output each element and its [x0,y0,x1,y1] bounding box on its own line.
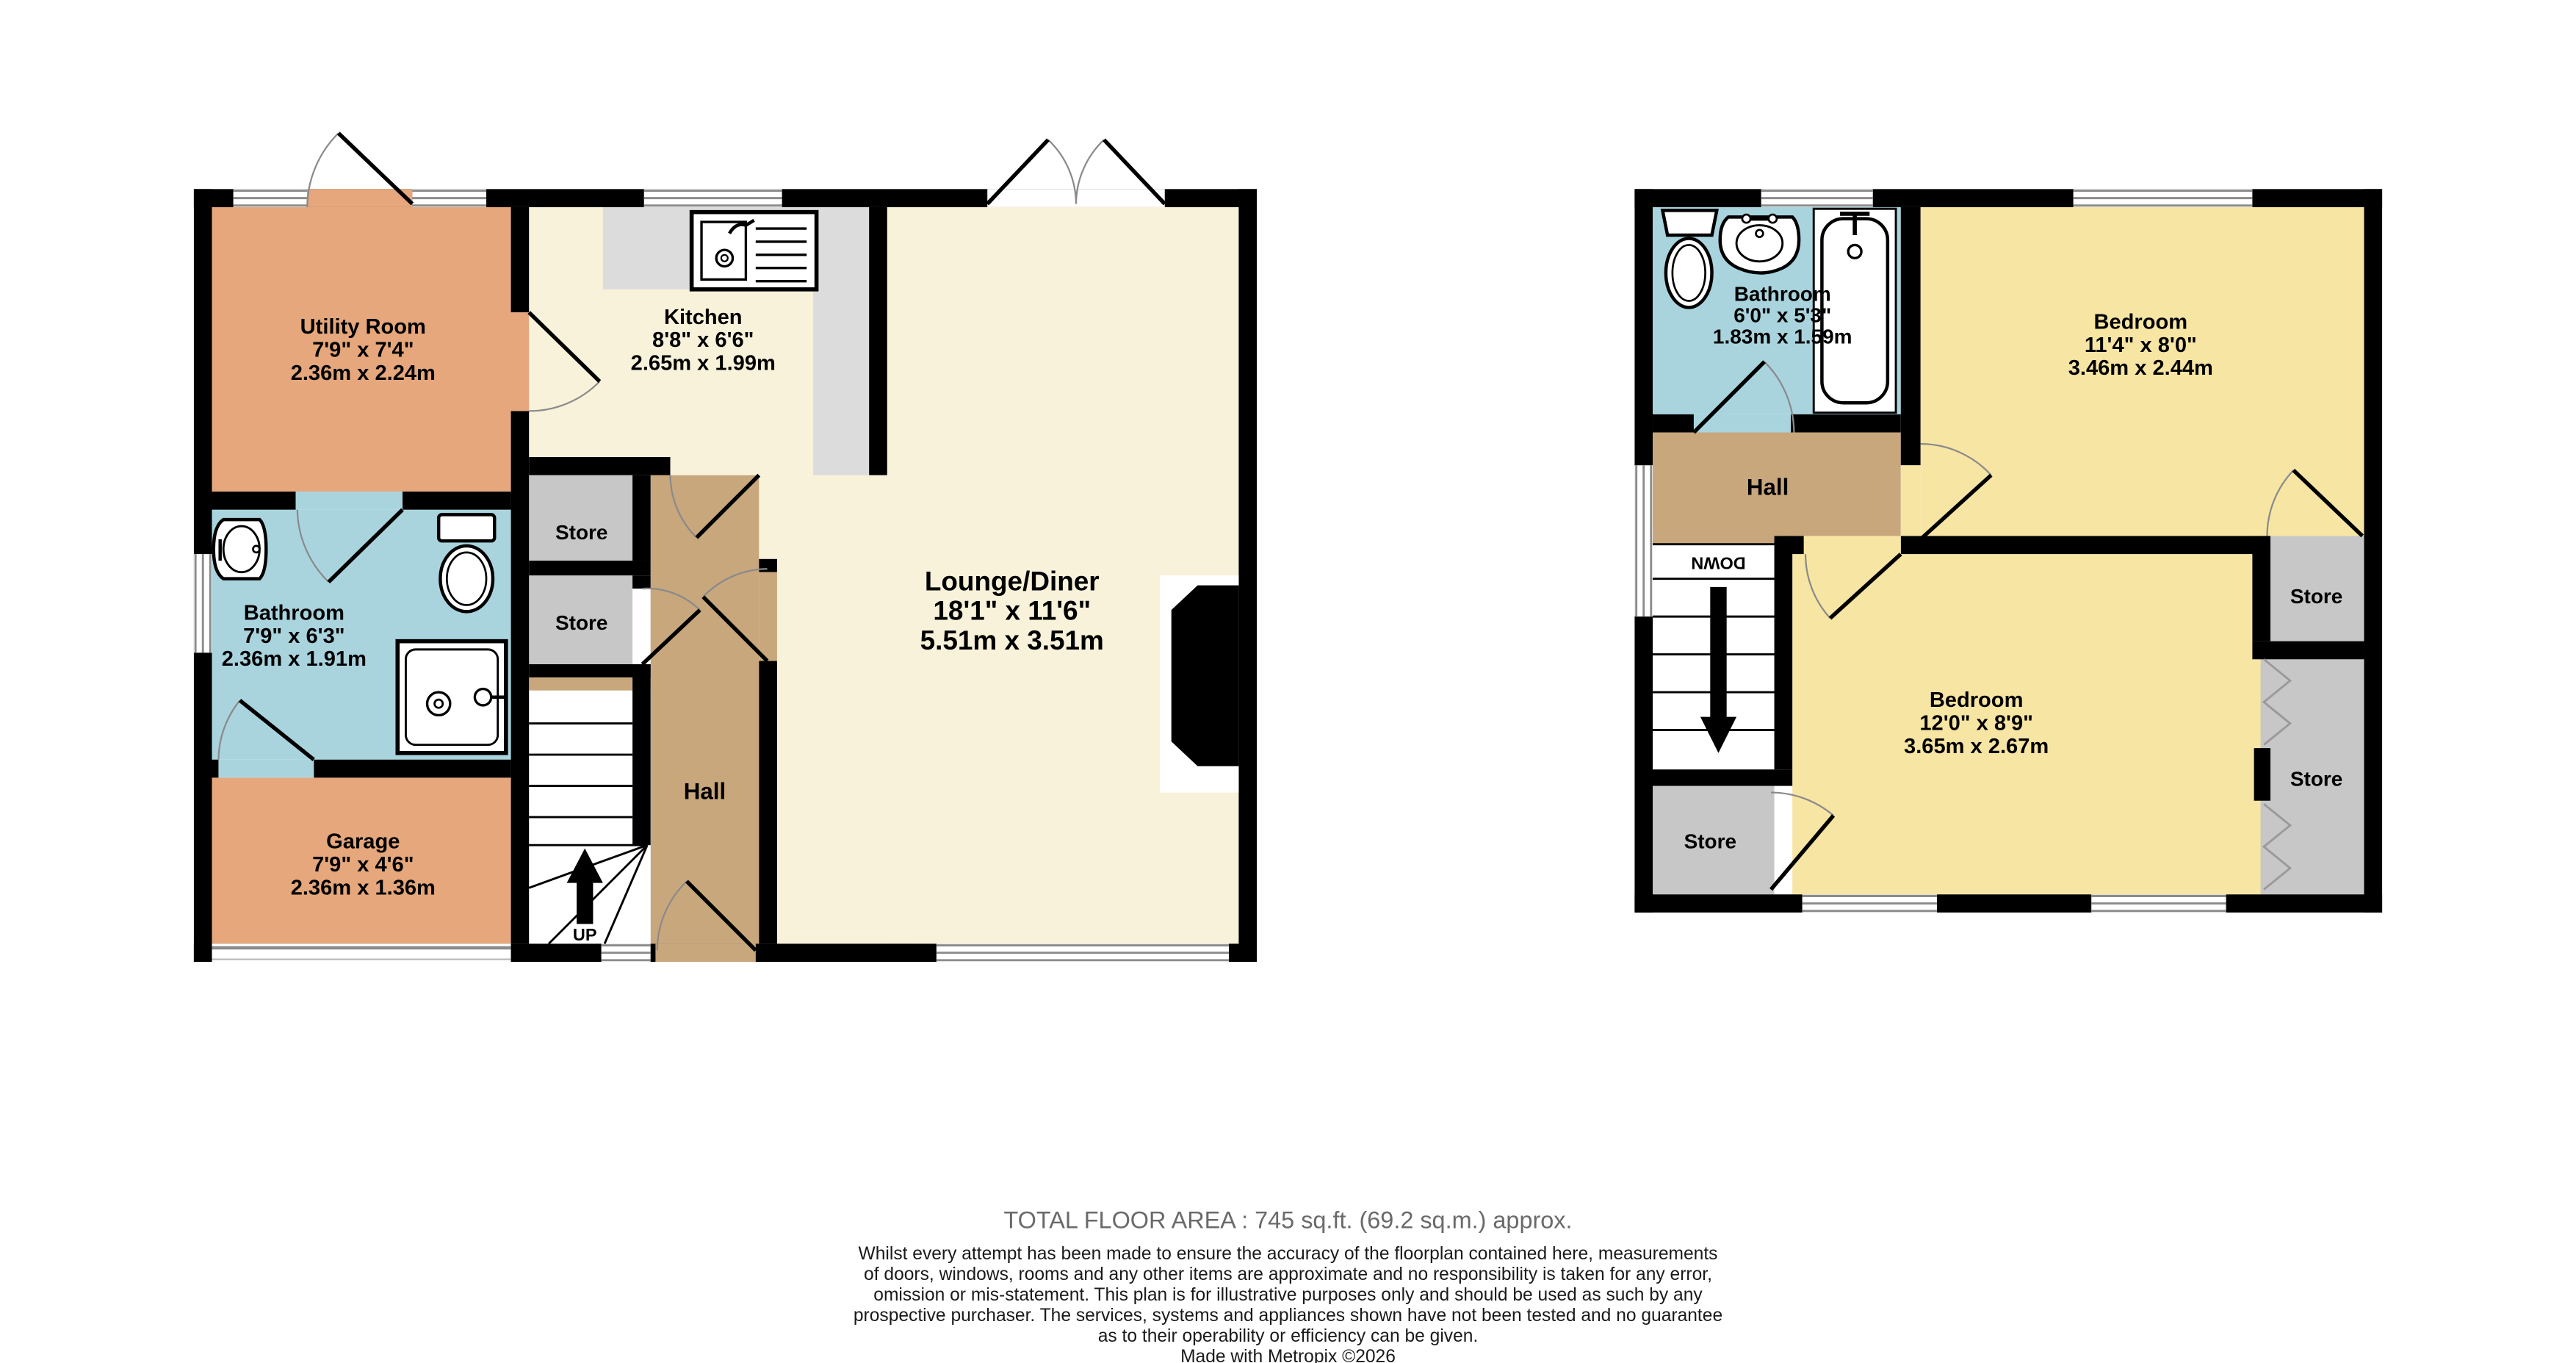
disclaimer-line: omission or mis-statement. This plan is … [873,1285,1703,1305]
svg-text:6'0" x 5'3": 6'0" x 5'3" [1733,304,1831,327]
garage-door [212,943,511,962]
stairs-landing-strip [529,677,632,691]
svg-text:Bedroom: Bedroom [2093,311,2187,334]
lounge-floor-extension [759,475,910,944]
toilet-icon [439,514,494,611]
svg-text:1.83m x 1.59m: 1.83m x 1.59m [1713,326,1852,348]
kitchen-sink-icon [692,212,817,289]
total-floor-area: TOTAL FLOOR AREA : 745 sq.ft. (69.2 sq.m… [1003,1207,1572,1234]
svg-text:Bathroom: Bathroom [1734,282,1831,305]
window [1761,189,1873,207]
metropix-credit: Made with Metropix ©2026 [1180,1347,1396,1363]
ground-floor-plan: UP Utility Room 7'9" x 7'4" 2.36m x 2.24… [194,133,1257,962]
store-right-lower-label: Store [2290,768,2342,791]
first-hall-label: Hall [1747,475,1789,500]
lounge-diner-label: Lounge/Diner 18'1" x 11'6" 5.51m x 3.51m [920,566,1104,655]
window [937,943,1229,962]
svg-text:Bedroom: Bedroom [1930,688,2024,712]
sink-icon [214,519,267,579]
disclaimer-line: prospective purchaser. The services, sys… [854,1306,1722,1326]
disclaimer-line: Whilst every attempt has been made to en… [859,1244,1718,1264]
store-left-label: Store [1684,830,1736,853]
svg-text:2.65m x 1.99m: 2.65m x 1.99m [631,351,776,375]
window [1803,894,1937,913]
store-upper-label: Store [555,521,607,544]
disclaimer-line: as to their operability or efficiency ca… [1098,1326,1479,1346]
svg-text:Utility Room: Utility Room [300,315,426,339]
store-lower-label: Store [555,611,607,634]
svg-text:5.51m x 3.51m: 5.51m x 3.51m [920,625,1104,655]
utility-room-label: Utility Room 7'9" x 7'4" 2.36m x 2.24m [291,315,436,385]
ground-hall-label: Hall [684,778,726,804]
store-upper-floor [529,475,632,561]
floorplan-canvas: UP Utility Room 7'9" x 7'4" 2.36m x 2.24… [0,0,2576,1363]
svg-text:7'9" x 7'4": 7'9" x 7'4" [312,339,414,362]
window [644,189,782,207]
first-hall-floor-strip [1653,536,1775,544]
hall-floor [651,475,760,944]
store-right-upper-label: Store [2290,585,2342,608]
svg-text:8'8" x 6'6": 8'8" x 6'6" [652,328,754,352]
disclaimer-line: of doors, windows, rooms and any other i… [864,1265,1712,1284]
window [2091,894,2226,913]
svg-text:Garage: Garage [326,830,400,854]
svg-text:11'4" x 8'0": 11'4" x 8'0" [2085,334,2197,357]
chimney-breast [1160,575,1238,792]
stairs-up-label: UP [573,925,597,944]
svg-text:2.36m x 1.91m: 2.36m x 1.91m [222,647,367,671]
svg-text:Lounge/Diner: Lounge/Diner [925,566,1100,596]
window [1634,465,1653,616]
svg-text:7'9" x 6'3": 7'9" x 6'3" [243,625,344,648]
svg-text:2.36m x 1.36m: 2.36m x 1.36m [291,876,436,899]
svg-text:2.36m x 2.24m: 2.36m x 2.24m [291,362,436,385]
sink-icon [1720,215,1799,273]
footer: TOTAL FLOOR AREA : 745 sq.ft. (69.2 sq.m… [854,1207,1722,1363]
toilet-icon [1662,210,1717,307]
first-floor-plan: DOWN Bathroom 6'0" x 5'3" 1.83m x 1.59m … [1634,189,2382,913]
window [602,943,651,962]
svg-text:Bathroom: Bathroom [244,602,344,625]
stairs-down-label: DOWN [1691,554,1745,573]
counter-side-run [813,207,869,475]
window [2074,189,2253,207]
svg-text:Kitchen: Kitchen [664,306,743,329]
shower-icon [397,641,506,753]
window [194,554,212,652]
window [234,189,308,207]
svg-text:7'9" x 4'6": 7'9" x 4'6" [312,853,414,877]
window [412,189,486,207]
svg-text:3.46m x 2.44m: 3.46m x 2.44m [2068,356,2213,380]
svg-text:12'0" x 8'9": 12'0" x 8'9" [1919,712,2033,736]
svg-text:18'1" x 11'6": 18'1" x 11'6" [933,596,1091,626]
svg-text:3.65m x 2.67m: 3.65m x 2.67m [1904,735,2049,758]
